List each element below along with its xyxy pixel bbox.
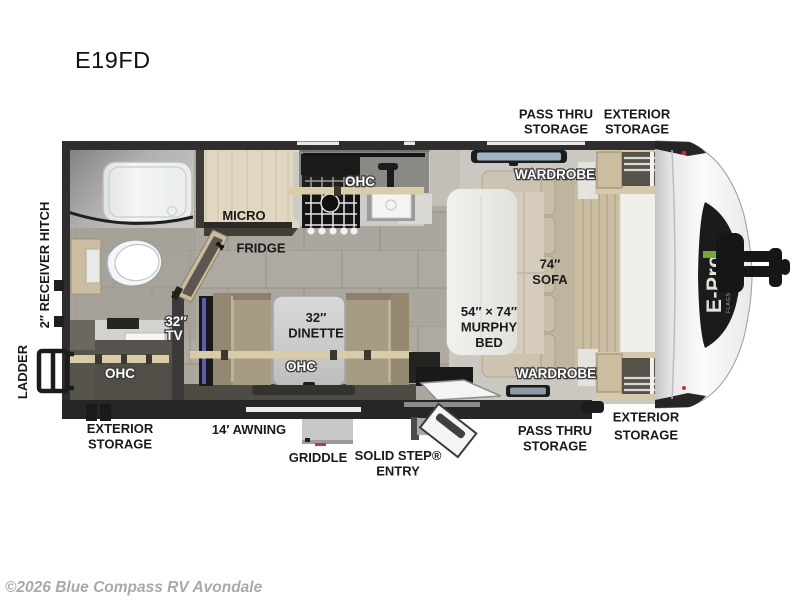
svg-text:EXTERIOR: EXTERIOR <box>613 410 680 425</box>
svg-text:DINETTE: DINETTE <box>288 326 344 341</box>
svg-text:E19FD: E19FD <box>75 47 151 73</box>
svg-text:LADDER: LADDER <box>15 344 30 399</box>
svg-text:WARDROBE: WARDROBE <box>515 167 595 182</box>
svg-text:FRIDGE: FRIDGE <box>236 241 285 256</box>
svg-text:STORAGE: STORAGE <box>614 428 678 443</box>
svg-text:ENTRY: ENTRY <box>376 464 420 479</box>
svg-text:SOFA: SOFA <box>532 272 568 287</box>
svg-text:STORAGE: STORAGE <box>524 122 588 137</box>
svg-text:STORAGE: STORAGE <box>88 437 152 452</box>
svg-text:32″: 32″ <box>306 310 327 325</box>
svg-text:32″: 32″ <box>165 314 187 329</box>
svg-text:14′ AWNING: 14′ AWNING <box>212 422 286 437</box>
svg-text:WARDROBE: WARDROBE <box>516 366 596 381</box>
svg-text:PASS THRU: PASS THRU <box>518 423 592 438</box>
svg-text:OHC: OHC <box>105 366 135 381</box>
svg-text:2″ RECEIVER HITCH: 2″ RECEIVER HITCH <box>37 202 52 329</box>
svg-text:STORAGE: STORAGE <box>523 439 587 454</box>
svg-text:GRIDDLE: GRIDDLE <box>289 450 348 465</box>
svg-text:EXTERIOR: EXTERIOR <box>87 421 154 436</box>
svg-text:MURPHY: MURPHY <box>461 320 518 335</box>
svg-text:OHC: OHC <box>286 359 316 374</box>
svg-text:PASS THRU: PASS THRU <box>519 107 593 122</box>
svg-text:MICRO: MICRO <box>222 208 265 223</box>
svg-text:OHC: OHC <box>345 174 375 189</box>
svg-text:STORAGE: STORAGE <box>605 122 669 137</box>
svg-text:74″: 74″ <box>540 257 561 272</box>
svg-text:©2026 Blue Compass RV Avondale: ©2026 Blue Compass RV Avondale <box>5 579 263 596</box>
svg-text:EXTERIOR: EXTERIOR <box>604 107 671 122</box>
svg-text:BED: BED <box>475 335 502 350</box>
svg-text:TV: TV <box>165 328 182 343</box>
svg-text:54″ × 74″: 54″ × 74″ <box>461 304 517 319</box>
svg-text:SOLID STEP®: SOLID STEP® <box>355 448 442 463</box>
